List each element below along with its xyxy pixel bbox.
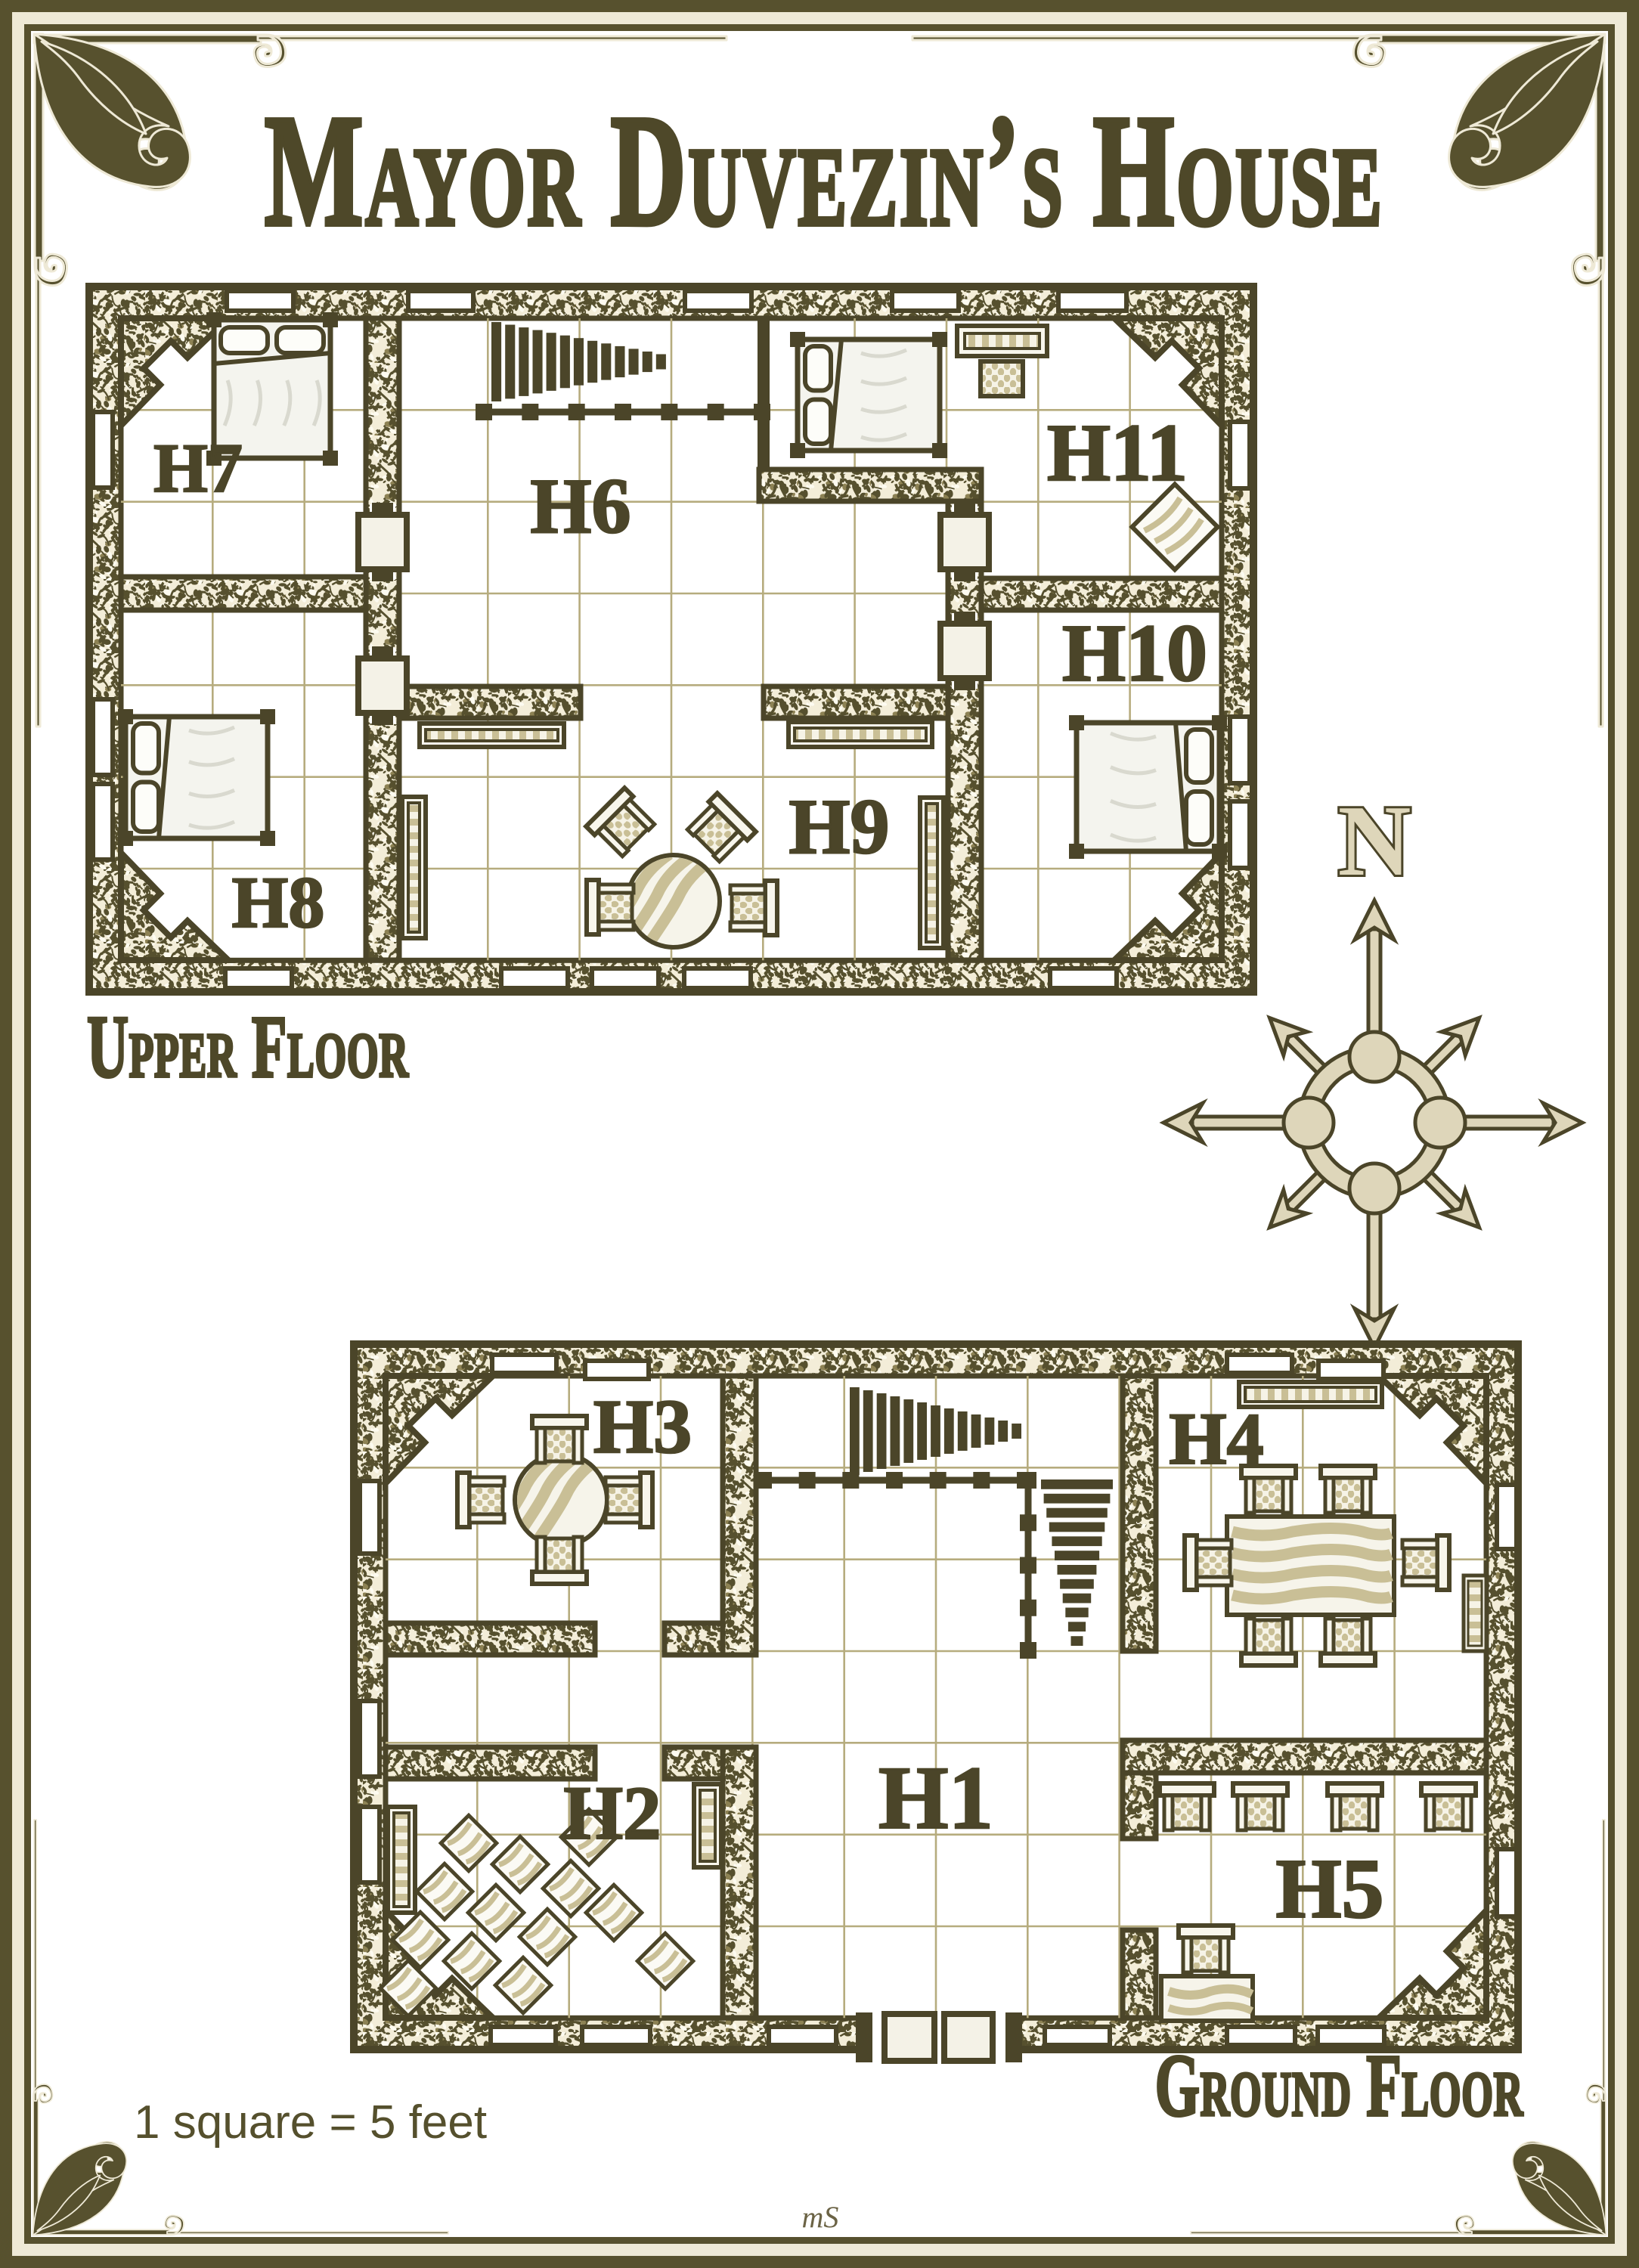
svg-text:mS: mS — [802, 2200, 839, 2234]
svg-text:H11: H11 — [1047, 408, 1188, 498]
svg-text:H7: H7 — [153, 429, 243, 507]
svg-text:H1: H1 — [878, 1748, 993, 1848]
svg-text:H5: H5 — [1275, 1842, 1383, 1936]
svg-text:H9: H9 — [789, 783, 890, 870]
svg-text:Upper Floor: Upper Floor — [87, 999, 409, 1097]
svg-text:Mayor Duvezin’s House: Mayor Duvezin’s House — [265, 82, 1384, 259]
svg-text:H3: H3 — [593, 1384, 692, 1470]
svg-text:H10: H10 — [1062, 609, 1207, 699]
svg-text:1 square = 5 feet: 1 square = 5 feet — [134, 2096, 487, 2149]
svg-text:H4: H4 — [1169, 1399, 1263, 1480]
svg-text:H6: H6 — [531, 463, 631, 550]
svg-text:N: N — [1338, 785, 1411, 897]
svg-text:H2: H2 — [563, 1771, 661, 1855]
svg-text:H8: H8 — [232, 862, 325, 943]
svg-text:Ground Floor: Ground Floor — [1155, 2037, 1524, 2136]
